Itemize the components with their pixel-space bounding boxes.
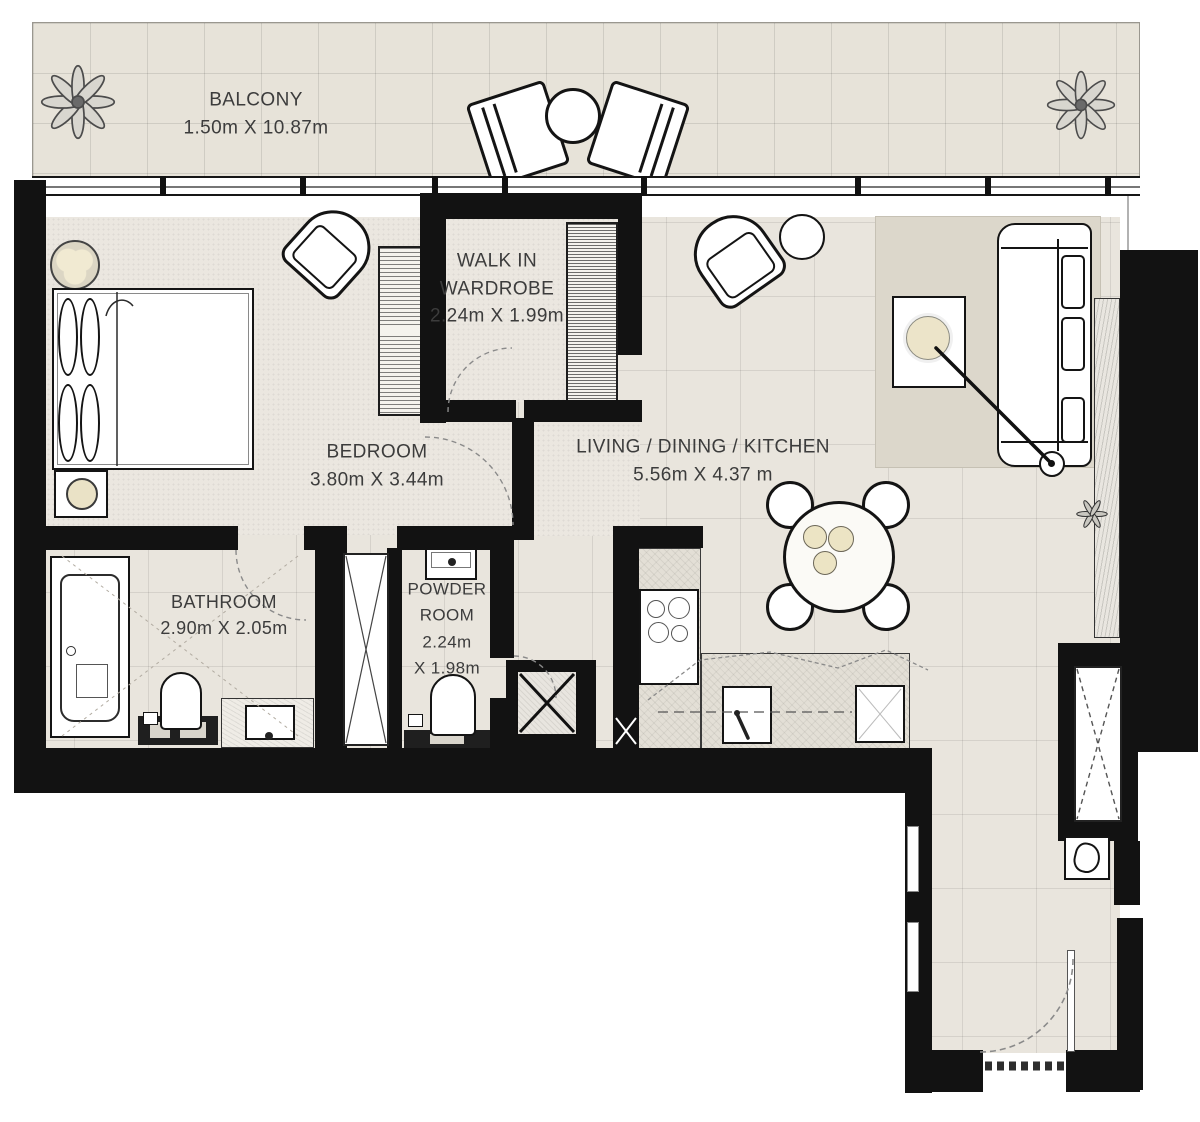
balcony-name: BALCONY: [183, 86, 328, 114]
wardrobe-door-arc: [448, 348, 512, 412]
wardrobe-label: WALK IN WARDROBE 2.24m X 1.99m: [430, 248, 564, 331]
annotation-overlay: [0, 0, 1200, 1122]
living-label: LIVING / DINING / KITCHEN 5.56m X 4.37 m: [576, 433, 830, 488]
wardrobe-name-line1: WALK IN: [430, 248, 564, 276]
balcony-label: BALCONY 1.50m X 10.87m: [183, 86, 328, 141]
powder-door-arc: [514, 656, 556, 698]
bedroom-label: BEDROOM 3.80m X 3.44m: [310, 438, 444, 493]
powder-dims-line1: 2.24m: [408, 629, 487, 655]
sink-faucet-dot: [734, 710, 740, 716]
bed-duvet-fold: [106, 300, 133, 316]
living-dims: 5.56m X 4.37 m: [576, 461, 830, 489]
bedroom-dims: 3.80m X 3.44m: [310, 466, 444, 494]
balcony-dims: 1.50m X 10.87m: [183, 114, 328, 142]
wardrobe-dims: 2.24m X 1.99m: [430, 303, 564, 331]
powder-name-line2: ROOM: [408, 603, 487, 629]
powder-name-line1: POWDER: [408, 576, 487, 602]
floor-plan: BALCONY 1.50m X 10.87m WALK IN WARDROBE …: [0, 0, 1200, 1122]
powder-label: POWDER ROOM 2.24m X 1.98m: [408, 576, 487, 681]
entrance-door-arc: [980, 959, 1073, 1052]
living-name: LIVING / DINING / KITCHEN: [576, 433, 830, 461]
floor-lamp-stem: [936, 348, 1052, 464]
bedroom-name: BEDROOM: [310, 438, 444, 466]
bathroom-name: BATHROOM: [160, 589, 287, 615]
wardrobe-name-line2: WARDROBE: [430, 275, 564, 303]
kitchen-cabinet-outline: [648, 650, 928, 700]
sink-faucet-icon: [737, 714, 748, 738]
powder-dims-line2: X 1.98m: [408, 655, 487, 681]
bathroom-dims: 2.90m X 2.05m: [160, 615, 287, 641]
bathroom-label: BATHROOM 2.90m X 2.05m: [160, 589, 287, 641]
